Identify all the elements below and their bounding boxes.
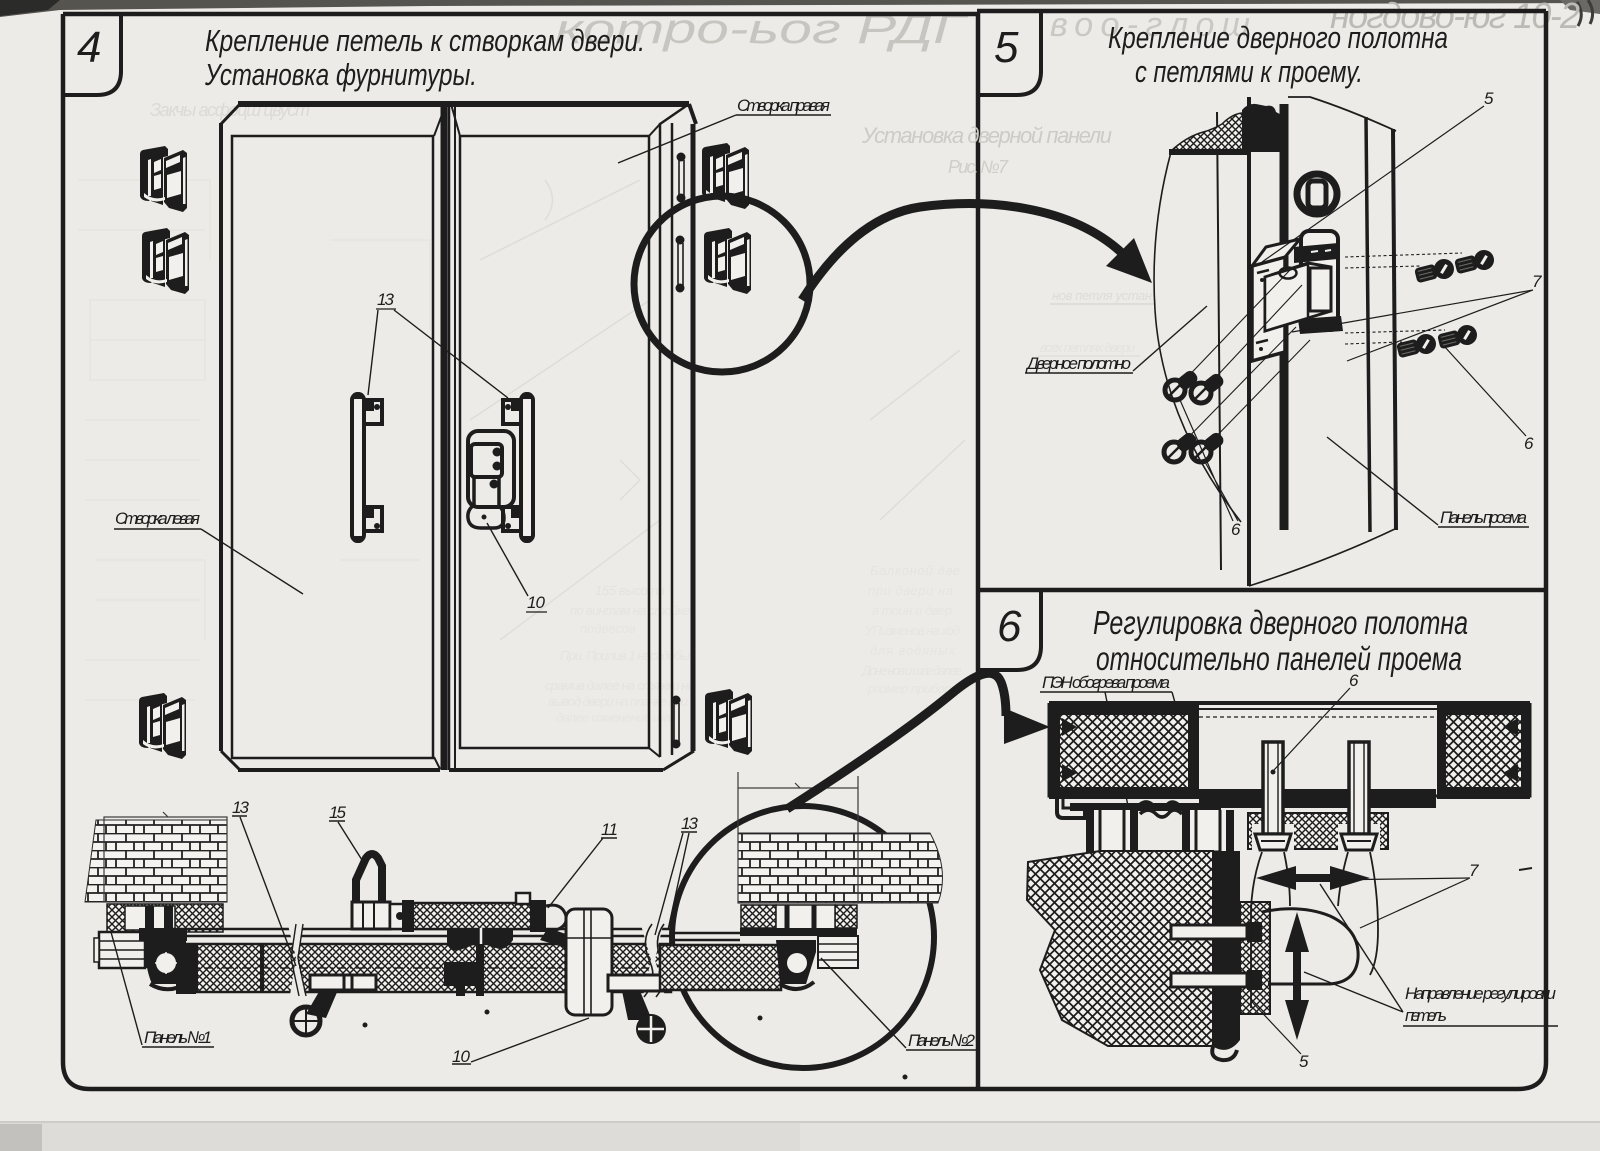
svg-text:Панель №2: Панель №2 [908, 1031, 976, 1050]
svg-text:в тоин и двер: в тоин и двер [872, 603, 952, 618]
svg-text:Створка левая: Створка левая [115, 509, 200, 528]
svg-text:Установка фурнитуры.: Установка фурнитуры. [204, 57, 477, 92]
svg-text:10: 10 [527, 593, 546, 612]
svg-text:4: 4 [77, 23, 101, 72]
svg-text:для водяных: для водяных [870, 643, 956, 658]
svg-text:11: 11 [601, 820, 618, 839]
svg-text:7: 7 [1532, 272, 1542, 291]
svg-text:с петлями к проему.: с петлями к проему. [1135, 54, 1363, 89]
svg-text:5: 5 [1484, 89, 1494, 108]
svg-text:5: 5 [994, 23, 1019, 72]
svg-text:Крепление петель к створкам дв: Крепление петель к створкам двери. [205, 23, 645, 58]
svg-text:13: 13 [232, 798, 250, 817]
svg-text:петель: петель [1405, 1006, 1447, 1025]
svg-text:вывод двери на планке при: вывод двери на планке при [548, 694, 688, 709]
svg-text:Направление регулировки: Направление регулировки [1405, 984, 1557, 1003]
svg-text:5: 5 [1299, 1052, 1309, 1071]
svg-text:размер прибора: размер прибора [867, 681, 958, 696]
svg-text:всех петлях двери: всех петлях двери [1040, 340, 1135, 355]
svg-text:13: 13 [377, 290, 395, 309]
svg-text:УПизменов на ход: УПизменов на ход [864, 623, 960, 638]
svg-text:подвесов: подвесов [580, 621, 636, 636]
svg-text:Панель №1: Панель №1 [144, 1028, 212, 1047]
svg-text:Рис. №7: Рис. №7 [948, 157, 1009, 177]
svg-text:Дверное полотно: Дверное полотно [1025, 354, 1131, 373]
svg-text:относительно панелей проема: относительно панелей проема [1096, 640, 1462, 677]
svg-text:13: 13 [681, 814, 699, 833]
svg-text:ПЭН обогрева проема: ПЭН обогрева проема [1042, 673, 1170, 692]
svg-text:Установка дверной панели: Установка дверной панели [861, 123, 1112, 148]
svg-text:Панель проема: Панель проема [1440, 508, 1527, 527]
svg-text:6: 6 [997, 602, 1022, 651]
svg-text:при двери на: при двери на [868, 583, 953, 598]
svg-text:нов петля устан: нов петля устан [1052, 288, 1152, 303]
svg-text:7: 7 [1469, 861, 1479, 880]
svg-text:Крепление дверного полотна: Крепление дверного полотна [1108, 20, 1448, 55]
svg-text:15: 15 [329, 803, 347, 822]
svg-text:6: 6 [1349, 671, 1359, 690]
svg-text:Регулировка дверного полотна: Регулировка дверного полотна [1093, 604, 1468, 641]
svg-text:10: 10 [452, 1047, 471, 1066]
svg-text:далее изменение шаг: далее изменение шаг [556, 710, 677, 725]
svg-text:155 высота: 155 высота [595, 583, 665, 598]
svg-text:Доне нов и шаг далее: Доне нов и шаг далее [860, 663, 962, 678]
svg-text:Балконой две: Балконой две [870, 563, 960, 578]
svg-text:6: 6 [1231, 520, 1241, 539]
svg-text:Створка правая: Створка правая [737, 96, 830, 115]
svg-text:6: 6 [1524, 434, 1534, 453]
